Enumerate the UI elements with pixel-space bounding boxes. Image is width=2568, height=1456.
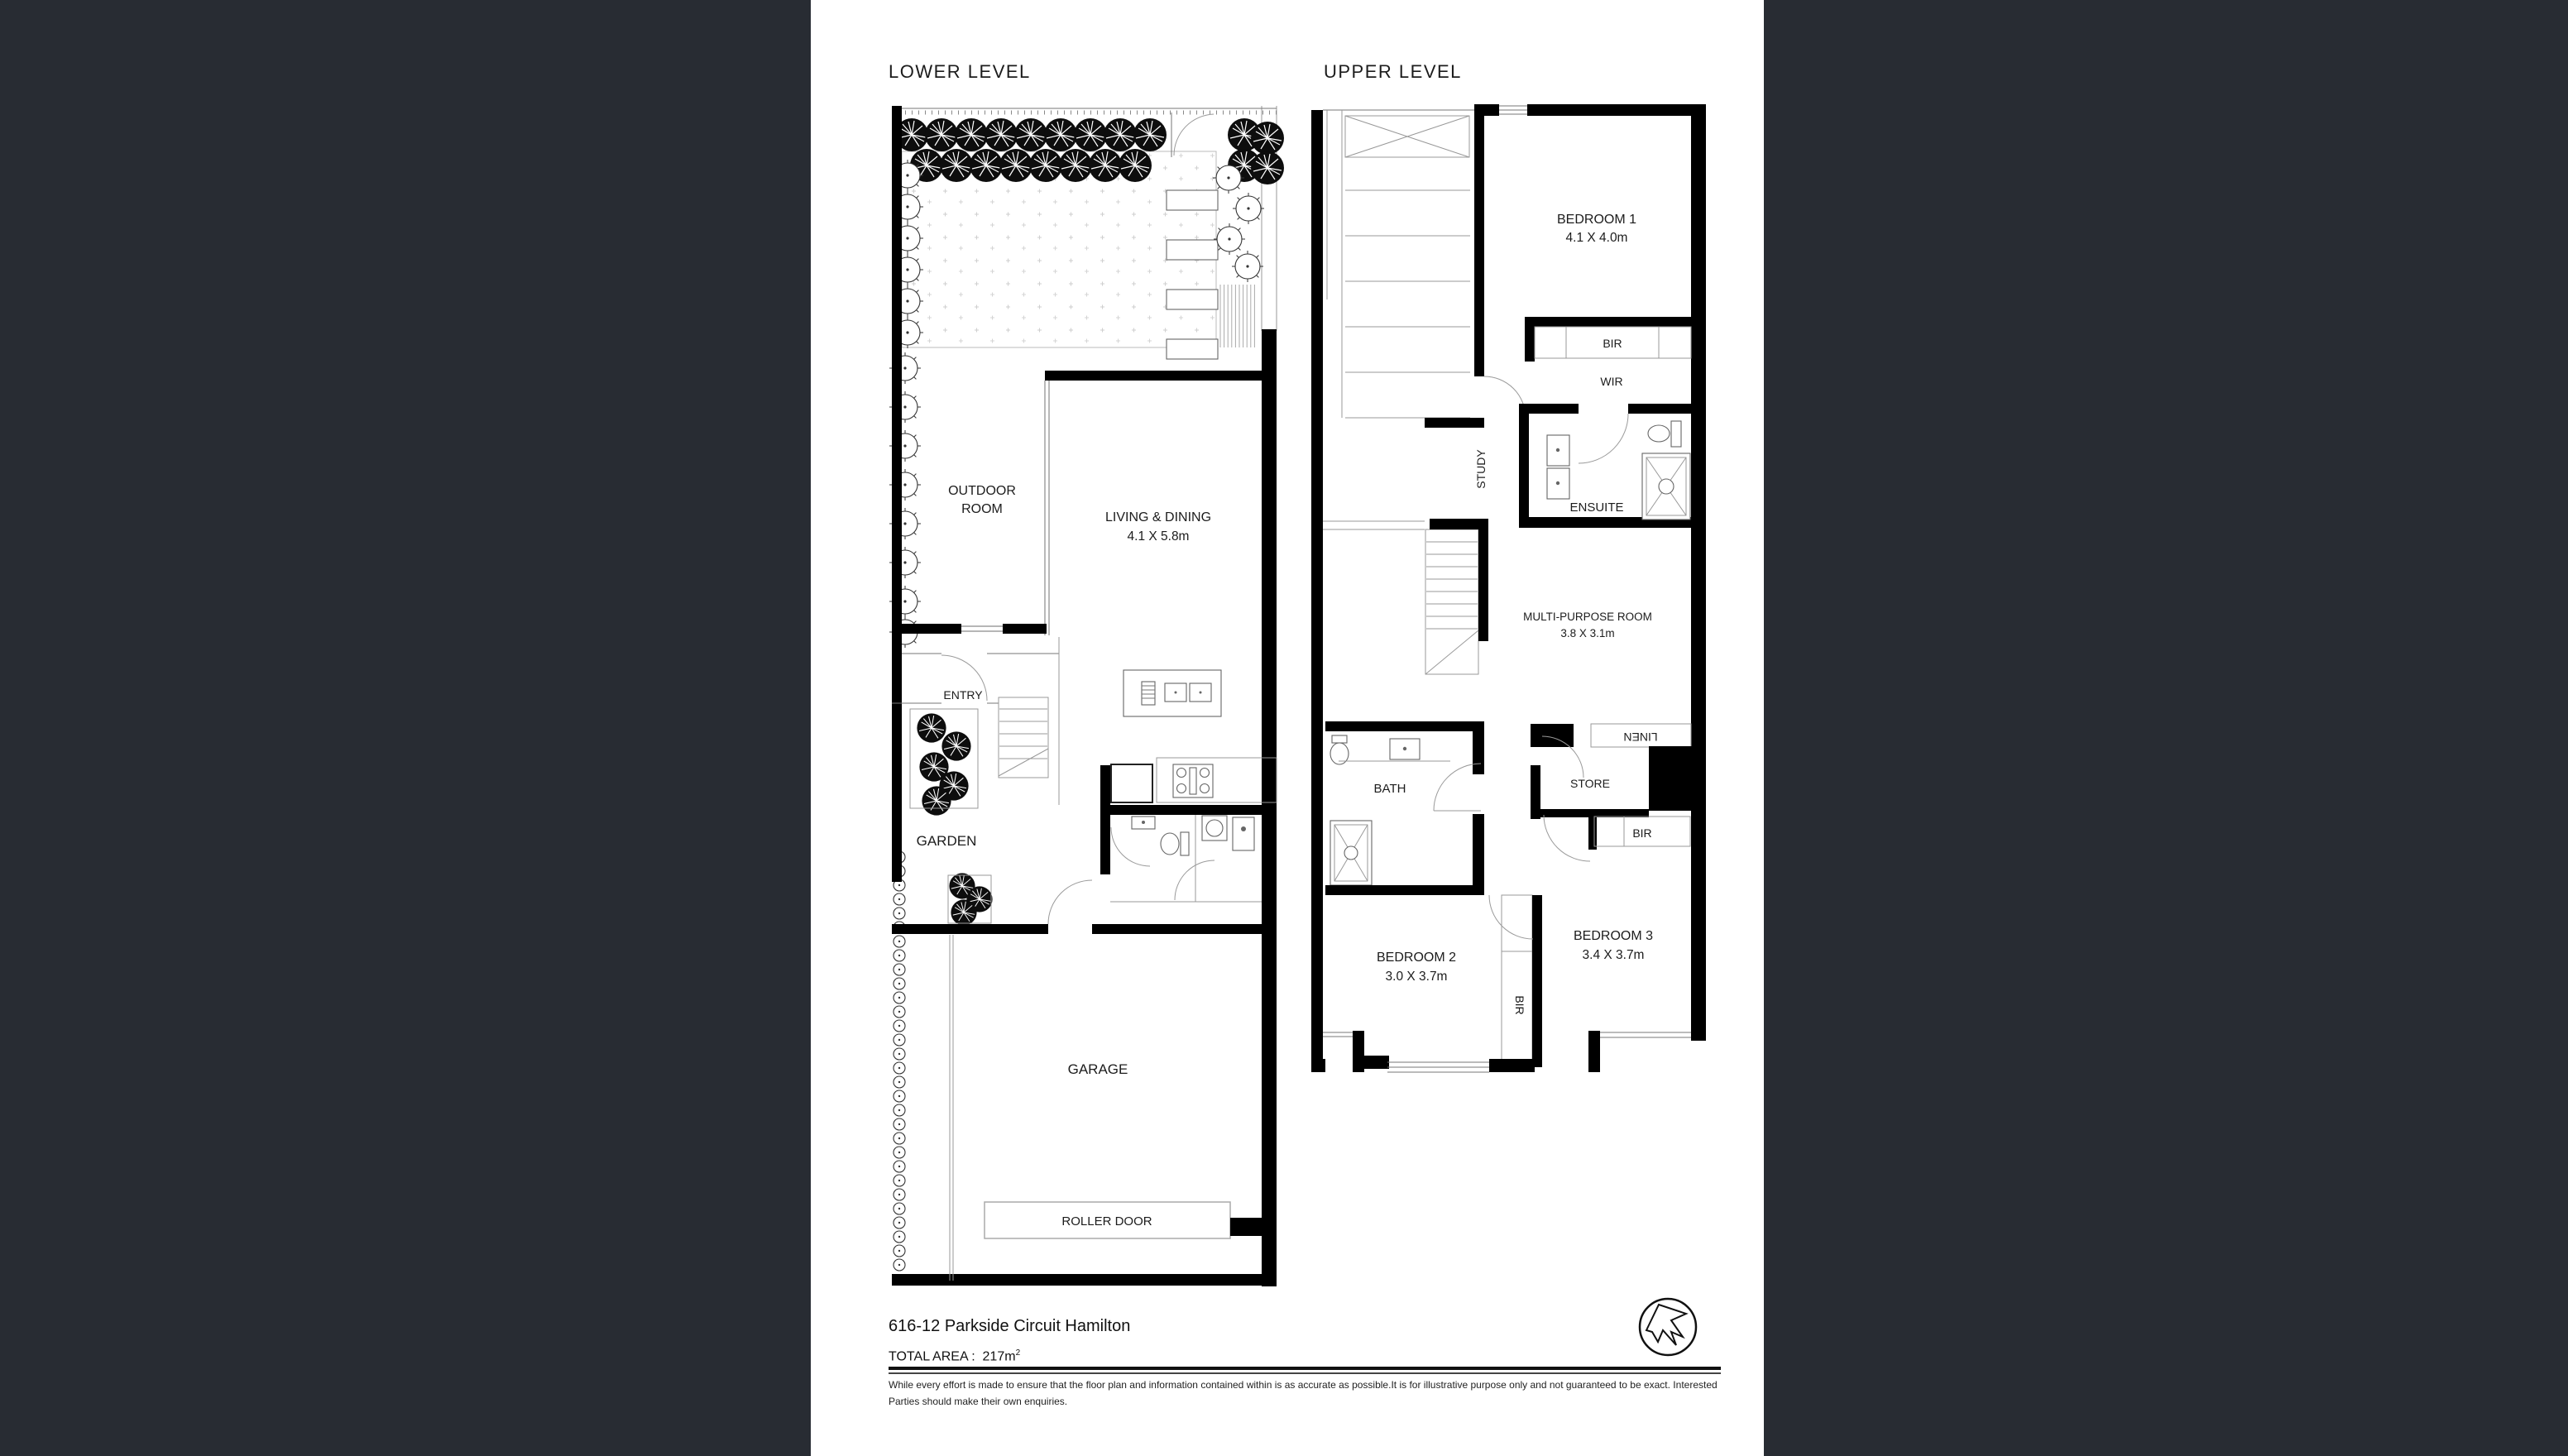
store-label: STORE xyxy=(1570,777,1610,790)
divider-rule-light xyxy=(889,1372,1721,1374)
disclaimer-line-2: Parties should make their own enquiries. xyxy=(889,1396,1067,1407)
linen-label: LINEN xyxy=(1623,730,1657,744)
logo-arrow-glyph xyxy=(1646,1305,1686,1345)
skylight xyxy=(1345,116,1469,157)
multi-purpose-dims: 3.8 X 3.1m xyxy=(1560,627,1614,639)
living-dining-dims: 4.1 X 5.8m xyxy=(1128,529,1190,544)
divider-rule-heavy xyxy=(889,1367,1721,1370)
bath-fixtures xyxy=(1330,735,1450,885)
wir-label: WIR xyxy=(1600,375,1622,388)
fridge xyxy=(1111,764,1152,802)
screenshot-stage: LOWER LEVEL xyxy=(0,0,2568,1456)
hedge-beads xyxy=(894,851,905,1271)
upper-level-plan: UPPER LEVEL xyxy=(1311,61,1706,1072)
garden-label: GARDEN xyxy=(917,833,977,849)
bedroom1-dims: 4.1 X 4.0m xyxy=(1566,231,1628,245)
upper-right-wall xyxy=(1691,104,1706,1041)
living-dining-label: LIVING & DINING xyxy=(1105,510,1211,524)
lower-left-wall xyxy=(892,106,902,882)
entry-label: ENTRY xyxy=(943,688,983,702)
gate-arc xyxy=(1174,114,1214,156)
ensuite-label: ENSUITE xyxy=(1569,500,1623,515)
kitchen-island xyxy=(1123,670,1221,716)
laundry-tub xyxy=(1233,817,1254,850)
lower-level-plan: LOWER LEVEL xyxy=(889,61,1284,1286)
roof-bands xyxy=(1345,190,1470,418)
roller-door-label: ROLLER DOOR xyxy=(1061,1214,1152,1228)
bedroom1-label: BEDROOM 1 xyxy=(1557,213,1636,227)
decking-lines xyxy=(1220,285,1254,347)
total-area-label: TOTAL AREA : xyxy=(889,1349,975,1363)
upper-level-title: UPPER LEVEL xyxy=(1324,61,1462,82)
disclaimer-line-1: While every effort is made to ensure tha… xyxy=(889,1379,1718,1391)
bir2-label: BIR xyxy=(1513,995,1526,1014)
lower-level-title: LOWER LEVEL xyxy=(889,61,1031,82)
bedroom2-dims: 3.0 X 3.7m xyxy=(1386,970,1448,984)
bedroom3-dims: 3.4 X 3.7m xyxy=(1583,948,1645,962)
multi-purpose-label: MULTI-PURPOSE ROOM xyxy=(1523,611,1652,623)
total-area-value: 217m xyxy=(983,1349,1016,1363)
bir3-label: BIR xyxy=(1632,826,1651,840)
outdoor-room-label-1: OUTDOOR xyxy=(948,484,1016,498)
floorplan-paper: LOWER LEVEL xyxy=(811,0,1764,1456)
upper-left-wall xyxy=(1311,110,1323,1072)
garage-label: GARAGE xyxy=(1068,1061,1128,1077)
bedroom2-label: BEDROOM 2 xyxy=(1377,951,1456,965)
bedroom3-label: BEDROOM 3 xyxy=(1574,929,1653,943)
lower-stairs xyxy=(999,697,1048,778)
total-area: TOTAL AREA : 217m2 xyxy=(889,1348,1020,1364)
toilet xyxy=(1161,833,1179,855)
garage-door-arc xyxy=(1048,880,1092,924)
total-area-sup: 2 xyxy=(1016,1348,1021,1358)
floorplan-svg: LOWER LEVEL xyxy=(811,0,1764,1456)
kitchen-bench xyxy=(1111,758,1277,802)
agency-logo xyxy=(1635,1292,1701,1360)
outdoor-room-label-2: ROOM xyxy=(961,502,1003,516)
bath-label: BATH xyxy=(1374,782,1406,796)
property-address: 616-12 Parkside Circuit Hamilton xyxy=(889,1317,1130,1336)
study-label: STUDY xyxy=(1474,449,1488,489)
bir1-label: BIR xyxy=(1603,337,1622,350)
shaft-block xyxy=(1649,746,1706,811)
upper-stairs xyxy=(1425,529,1478,674)
powder-laundry xyxy=(1110,815,1262,902)
